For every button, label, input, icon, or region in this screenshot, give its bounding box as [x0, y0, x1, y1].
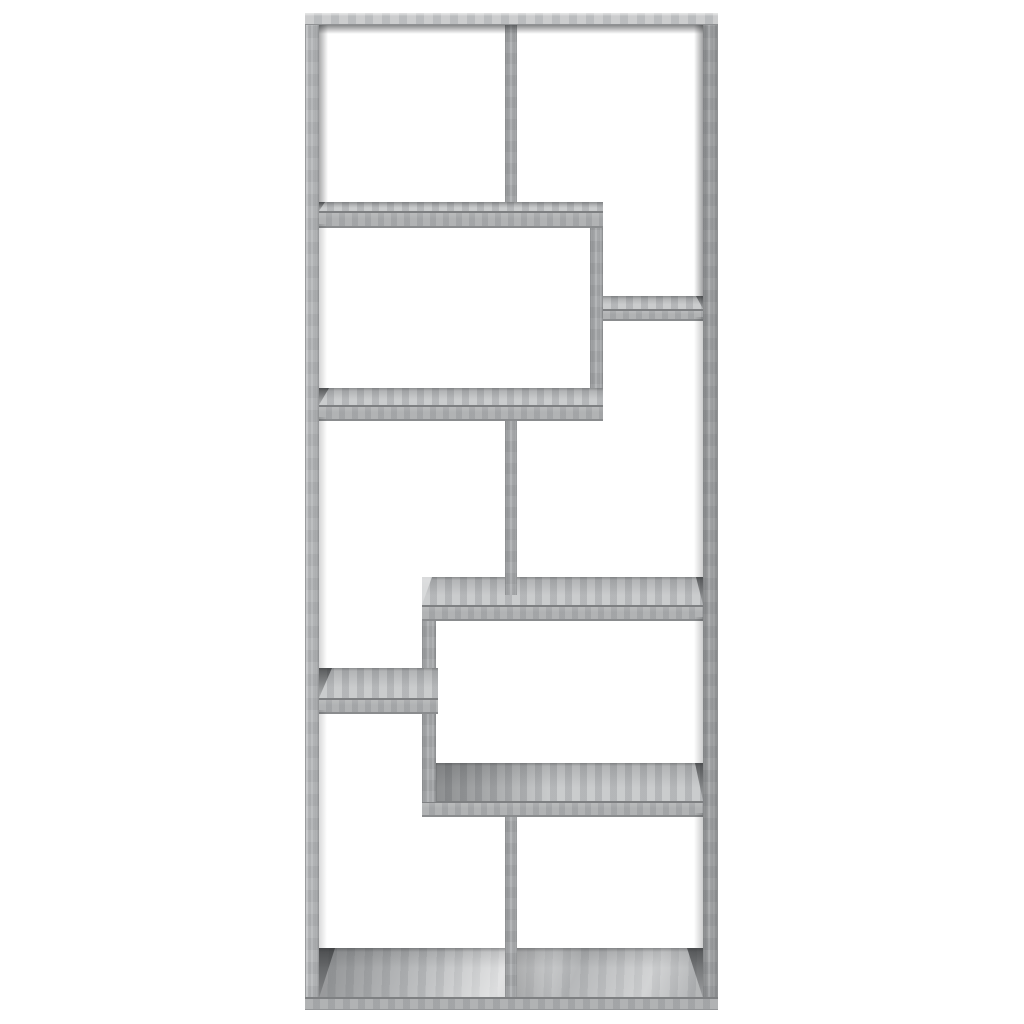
perspective-wedge	[319, 388, 329, 405]
upper-left-shelf-front-edge	[319, 213, 603, 228]
top-center-divider	[505, 25, 517, 207]
large-middle-shelf-top-surface	[319, 388, 603, 407]
perspective-wedge	[319, 202, 325, 211]
frame-top-board	[305, 13, 718, 25]
inner-shadow-left-bottom	[319, 710, 327, 948]
large-middle-shelf	[319, 388, 603, 417]
inner-shadow-right-mid	[694, 317, 703, 577]
perspective-wedge	[422, 577, 432, 605]
inner-shadow-right-top	[694, 25, 703, 296]
inner-shadow-left-top	[319, 25, 328, 202]
inner-shadow-left-low	[319, 417, 327, 668]
small-right-shelf	[603, 296, 703, 317]
upper-right-riser	[590, 202, 603, 417]
inner-shadow-right-low	[694, 617, 703, 763]
small-right-shelf-top-surface	[603, 296, 703, 311]
perspective-wedge	[319, 668, 332, 698]
perspective-wedge	[687, 948, 703, 998]
small-left-shelf-top-surface	[319, 668, 438, 700]
upper-left-shelf	[319, 202, 603, 224]
perspective-wedge	[696, 296, 703, 309]
middle-center-divider	[505, 405, 517, 595]
perspective-wedge	[695, 763, 703, 801]
inner-shadow-right-bottom	[694, 813, 703, 948]
small-left-shelf-front-edge	[319, 700, 438, 714]
lower-protruding-shelf-top-surface	[422, 763, 703, 803]
frame-left-side	[305, 13, 319, 1010]
middle-protruding-shelf	[422, 577, 703, 617]
middle-protruding-shelf-top-surface	[422, 577, 703, 607]
small-right-shelf-front-edge	[603, 311, 703, 321]
inner-shadow-left-mid	[319, 224, 327, 388]
middle-protruding-shelf-front-edge	[422, 607, 703, 621]
bookcase-product-photo	[0, 0, 1024, 1024]
large-middle-shelf-front-edge	[319, 407, 603, 421]
lower-protruding-shelf-front-edge	[422, 803, 703, 817]
small-left-shelf	[319, 668, 438, 710]
frame-bottom-board	[305, 997, 718, 1010]
perspective-wedge	[319, 948, 335, 998]
frame-right-side	[703, 13, 718, 1010]
perspective-wedge	[696, 577, 703, 605]
upper-left-shelf-top-surface	[319, 202, 603, 213]
bottom-center-divider	[505, 801, 517, 997]
lower-protruding-shelf	[422, 763, 703, 813]
